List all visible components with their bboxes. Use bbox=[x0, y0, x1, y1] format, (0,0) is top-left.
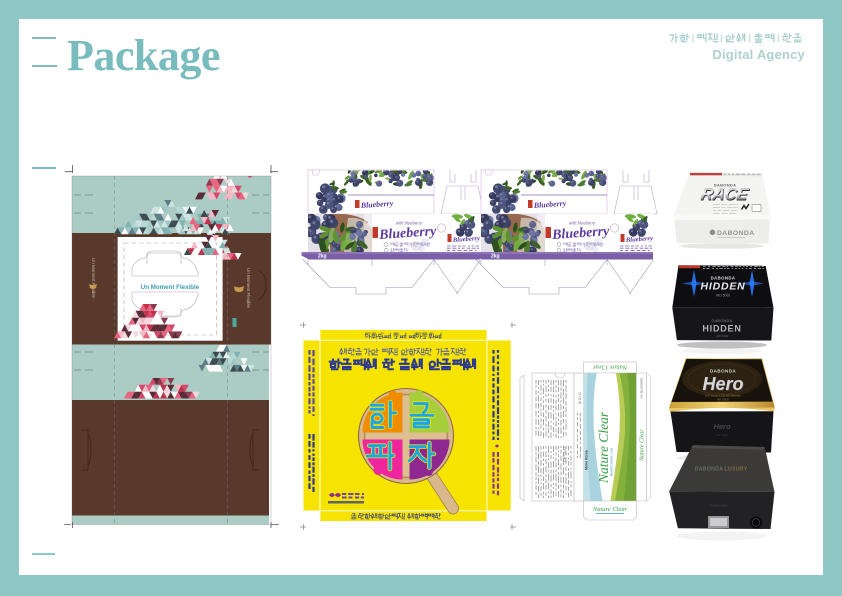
svg-text:Nature Clear: Nature Clear bbox=[640, 429, 646, 462]
svg-text:M O I D: M O I D bbox=[578, 392, 582, 404]
svg-text:LUXURY: LUXURY bbox=[725, 467, 748, 473]
svg-text:DABONDA: DABONDA bbox=[710, 369, 737, 374]
svg-text:DABONDA: DABONDA bbox=[710, 504, 728, 508]
svg-text:HIDDEN: HIDDEN bbox=[700, 281, 745, 293]
svg-text:HID 5000: HID 5000 bbox=[716, 334, 729, 338]
svg-text:DABONDA: DABONDA bbox=[712, 319, 733, 323]
svg-text:RACE: RACE bbox=[699, 185, 751, 204]
svg-text:HR 5000: HR 5000 bbox=[717, 398, 729, 402]
svg-text:Un Moment Flexible: Un Moment Flexible bbox=[246, 268, 251, 309]
svg-text:Nature Clear: Nature Clear bbox=[592, 364, 628, 371]
svg-text:DABONDA: DABONDA bbox=[717, 230, 755, 237]
svg-text:Mono Korea: Mono Korea bbox=[585, 450, 589, 470]
svg-text:HR 5000: HR 5000 bbox=[716, 433, 728, 437]
svg-text:HID 5000: HID 5000 bbox=[716, 294, 730, 298]
svg-text:Un Moment Flexible: Un Moment Flexible bbox=[91, 258, 96, 299]
svg-text:HIDDEN: HIDDEN bbox=[702, 324, 741, 334]
svg-text:CE 0123: CE 0123 bbox=[562, 446, 567, 462]
svg-text:Un Moment Flexible: Un Moment Flexible bbox=[141, 284, 200, 291]
svg-text:UV BLOCKING: UV BLOCKING bbox=[640, 377, 644, 398]
svg-text:Nature Clear: Nature Clear bbox=[592, 506, 628, 513]
svg-text:Hero: Hero bbox=[713, 422, 731, 431]
svg-text:Hero: Hero bbox=[702, 374, 743, 394]
svg-text:DABONDA: DABONDA bbox=[695, 467, 724, 473]
svg-text:Brand Contact Lens: Brand Contact Lens bbox=[610, 447, 614, 476]
